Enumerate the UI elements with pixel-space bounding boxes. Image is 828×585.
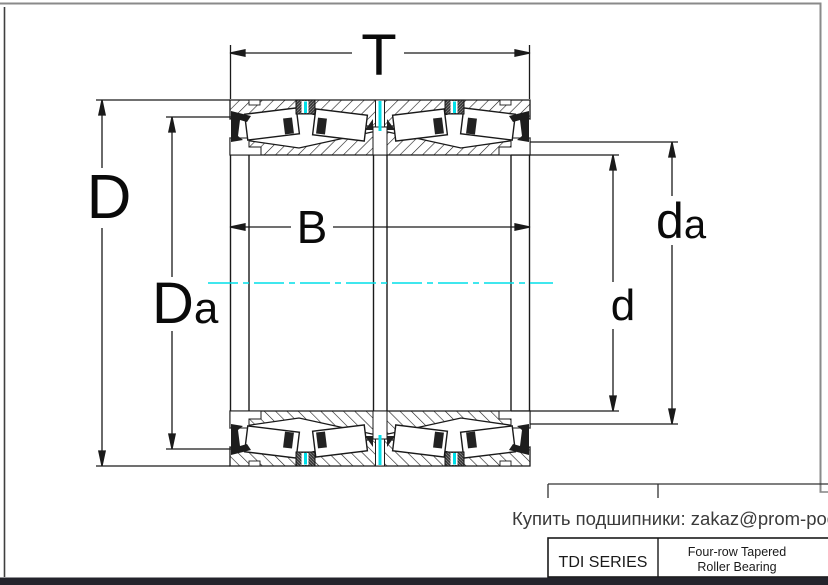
purchase-note: Купить подшипники: zakaz@prom-pod.ru <box>512 508 828 529</box>
bearing-section-bottom <box>230 411 530 466</box>
label-D: D <box>87 163 132 232</box>
footer-bar <box>0 578 828 585</box>
bearing-section-top <box>230 100 530 155</box>
label-Da-base: D <box>152 271 194 336</box>
label-da-base: d <box>656 193 684 249</box>
label-da-sub: a <box>684 203 707 247</box>
drawing-page: T D Da B d da Купить подшипники: zakaz@p… <box>0 0 828 585</box>
bearing-type-line2: Roller Bearing <box>697 560 776 574</box>
dimension-B <box>230 224 530 230</box>
title-block: TDI SERIES Four-row Tapered Roller Beari… <box>548 538 828 577</box>
label-d: d <box>611 281 635 330</box>
label-Da: Da <box>152 271 219 336</box>
dimension-d <box>511 155 619 411</box>
series-name: TDI SERIES <box>559 554 648 571</box>
bearing-drawing: T D Da B d da Купить подшипники: zakaz@p… <box>0 0 828 585</box>
label-da: da <box>656 193 707 249</box>
bearing-type-line1: Four-row Tapered <box>688 545 786 559</box>
label-Da-sub: a <box>194 284 219 333</box>
title-block-grid <box>548 484 828 498</box>
label-T: T <box>361 23 396 88</box>
label-B: B <box>297 201 328 253</box>
